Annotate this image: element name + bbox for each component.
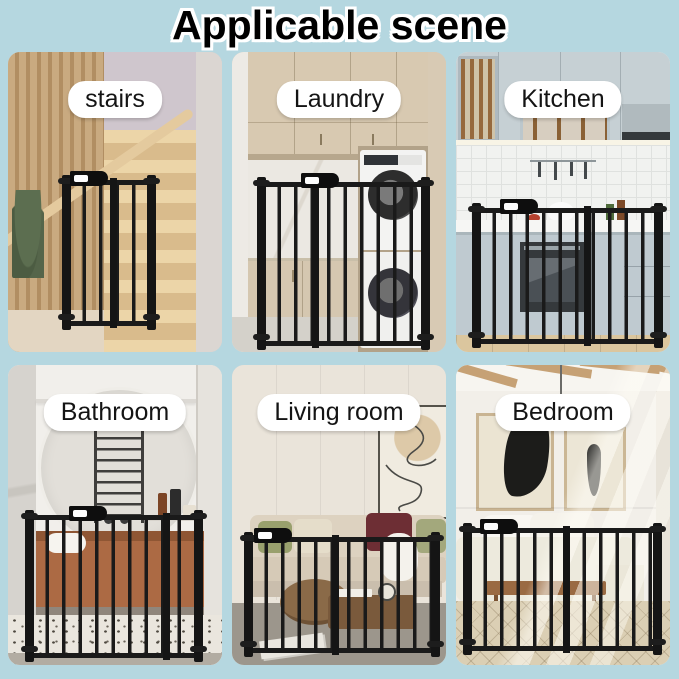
- gate-post-right: [654, 203, 663, 348]
- wainscot-line: [456, 507, 670, 509]
- gate-latch-handle: [480, 519, 518, 534]
- left-wall: [232, 52, 248, 352]
- gate-post-right: [431, 532, 440, 657]
- soap-pump-bottle: [170, 489, 181, 517]
- gate-post-left: [472, 203, 481, 348]
- room-label-laundry: Laundry: [277, 81, 401, 118]
- gate-door-frame: [332, 535, 339, 655]
- page-title: Applicable scene: [0, 2, 679, 49]
- panel-bathroom: Bathroom: [8, 365, 222, 665]
- abstract-art-frame: [564, 427, 626, 511]
- room-label-kitchen: Kitchen: [504, 81, 621, 118]
- washer-control-panel: [364, 155, 422, 165]
- safety-gate: [25, 515, 203, 662]
- cabinet-handle: [372, 134, 374, 145]
- cabinet-handle: [320, 134, 322, 145]
- gate-door-frame: [110, 178, 117, 328]
- range-hood-panel: [622, 132, 670, 140]
- gate-post-right: [147, 175, 156, 330]
- gate-bars: [29, 515, 199, 658]
- gate-post-right: [653, 523, 662, 655]
- glass-cabinet: [458, 56, 498, 142]
- room-label-stairs: stairs: [68, 81, 162, 118]
- right-wall: [196, 52, 222, 352]
- gate-bars: [261, 182, 426, 346]
- gate-post-left: [463, 523, 472, 655]
- gate-latch-handle: [70, 171, 108, 186]
- safety-gate: [463, 528, 662, 655]
- hanging-utensil: [570, 162, 573, 176]
- panel-kitchen: Kitchen: [456, 52, 670, 352]
- gate-bars: [248, 537, 436, 653]
- hanging-utensil: [554, 162, 557, 180]
- gate-post-left: [244, 532, 253, 657]
- gate-post-left: [25, 510, 34, 662]
- gate-door-frame: [584, 206, 591, 346]
- gate-door-frame: [563, 526, 570, 653]
- gate-latch-handle: [500, 199, 538, 214]
- panel-stairs: stairs: [8, 52, 222, 352]
- art-teardrop-shape: [587, 444, 601, 496]
- product-image: Applicable scene stairs: [0, 0, 679, 679]
- hanging-utensil: [538, 162, 541, 177]
- room-label-living-room: Living room: [257, 394, 420, 431]
- gate-latch-handle: [254, 528, 292, 543]
- room-label-bedroom: Bedroom: [495, 394, 630, 431]
- gate-post-right: [421, 177, 430, 350]
- cabinet-seam: [498, 52, 499, 140]
- gate-post-left: [257, 177, 266, 350]
- gate-latch-handle: [301, 173, 339, 188]
- safety-gate: [62, 180, 156, 330]
- safety-gate: [472, 208, 663, 348]
- cabinet-seam: [248, 122, 446, 123]
- safety-gate: [257, 182, 430, 350]
- panel-living-room: Living room: [232, 365, 446, 665]
- panel-laundry: Laundry: [232, 52, 446, 352]
- gate-post-right: [194, 510, 203, 662]
- gate-door-frame: [163, 513, 170, 660]
- gate-bars: [476, 208, 659, 344]
- hanging-utensil: [584, 162, 587, 179]
- right-wall: [428, 52, 446, 352]
- gate-door-frame: [312, 180, 319, 348]
- safety-gate: [244, 537, 440, 657]
- room-label-bathroom: Bathroom: [44, 394, 186, 431]
- gate-post-left: [62, 175, 71, 330]
- plant: [12, 190, 44, 278]
- gate-latch-handle: [69, 506, 107, 521]
- panel-bedroom: Bedroom: [456, 365, 670, 665]
- range-hood: [622, 104, 670, 132]
- gate-bars: [66, 180, 152, 326]
